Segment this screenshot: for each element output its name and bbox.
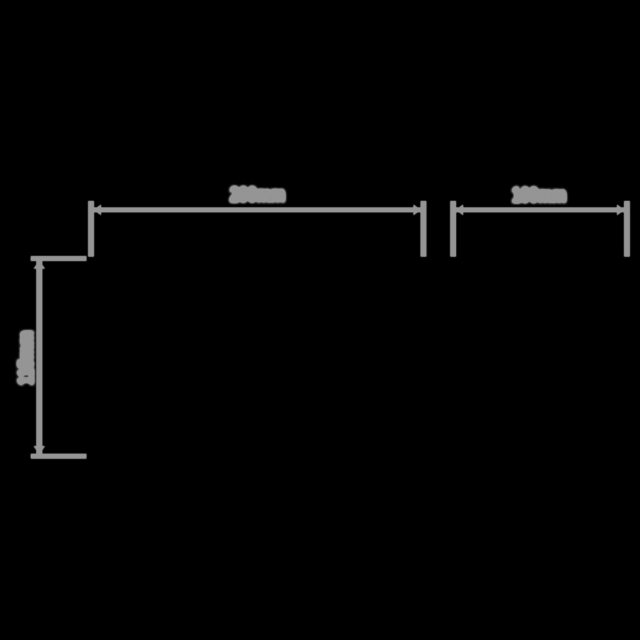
svg-text:115mm: 115mm <box>14 331 38 385</box>
svg-text:200mm: 200mm <box>230 183 285 207</box>
svg-text:100mm: 100mm <box>512 183 566 207</box>
